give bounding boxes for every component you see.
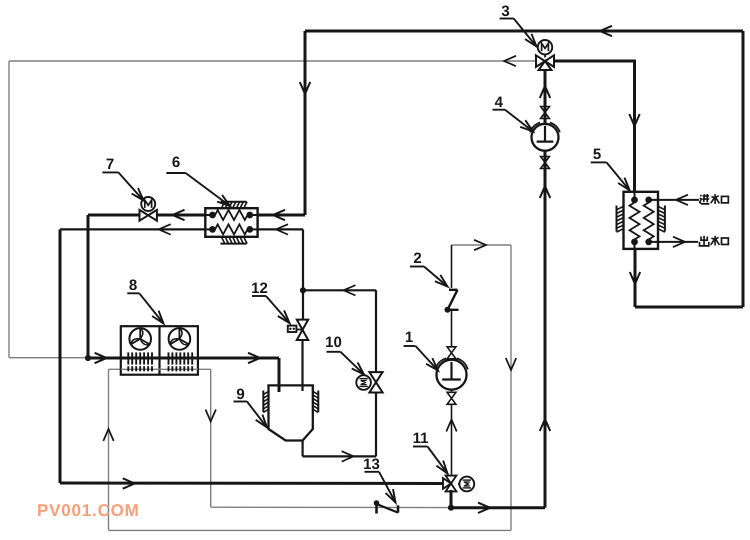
svg-text:12: 12 — [251, 280, 268, 297]
svg-text:6: 6 — [172, 154, 180, 171]
svg-text:9: 9 — [236, 386, 244, 403]
svg-text:11: 11 — [413, 430, 429, 447]
svg-text:7: 7 — [106, 156, 114, 173]
svg-text:13: 13 — [363, 456, 380, 473]
svg-text:PV001.COM: PV001.COM — [37, 501, 140, 520]
svg-text:10: 10 — [325, 334, 342, 351]
svg-text:4: 4 — [495, 94, 504, 111]
svg-text:3: 3 — [501, 3, 509, 20]
svg-text:1: 1 — [405, 329, 413, 346]
svg-text:5: 5 — [593, 146, 601, 163]
svg-text:8: 8 — [129, 277, 137, 294]
svg-text:2: 2 — [413, 250, 421, 267]
